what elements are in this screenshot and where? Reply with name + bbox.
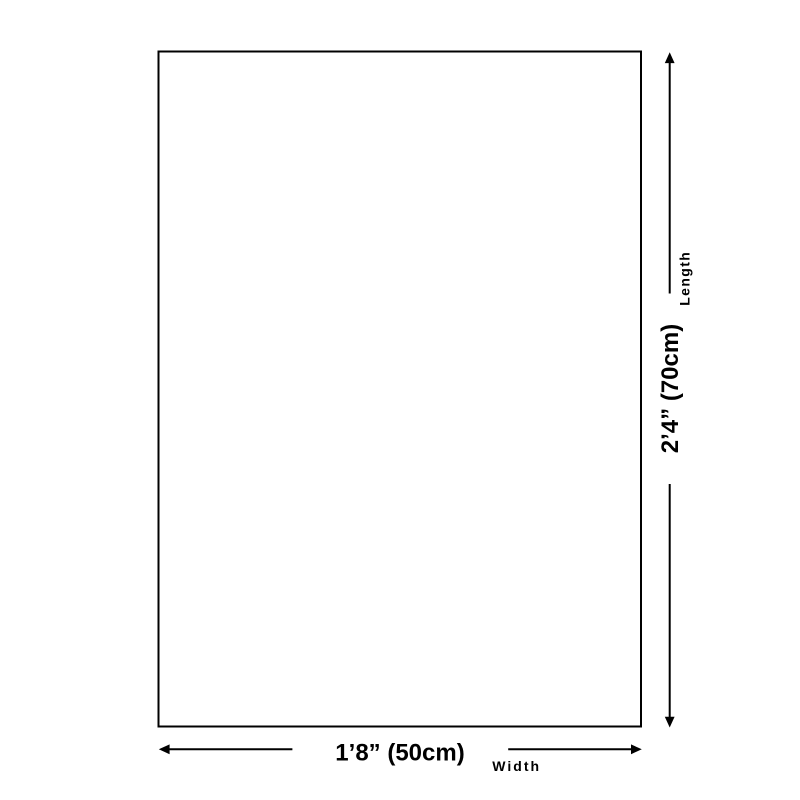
svg-text:Length: Length [677,251,693,306]
svg-text:2’4” (70cm): 2’4” (70cm) [657,324,684,453]
svg-text:1’8” (50cm): 1’8” (50cm) [335,740,464,767]
svg-text:Width: Width [492,758,541,774]
